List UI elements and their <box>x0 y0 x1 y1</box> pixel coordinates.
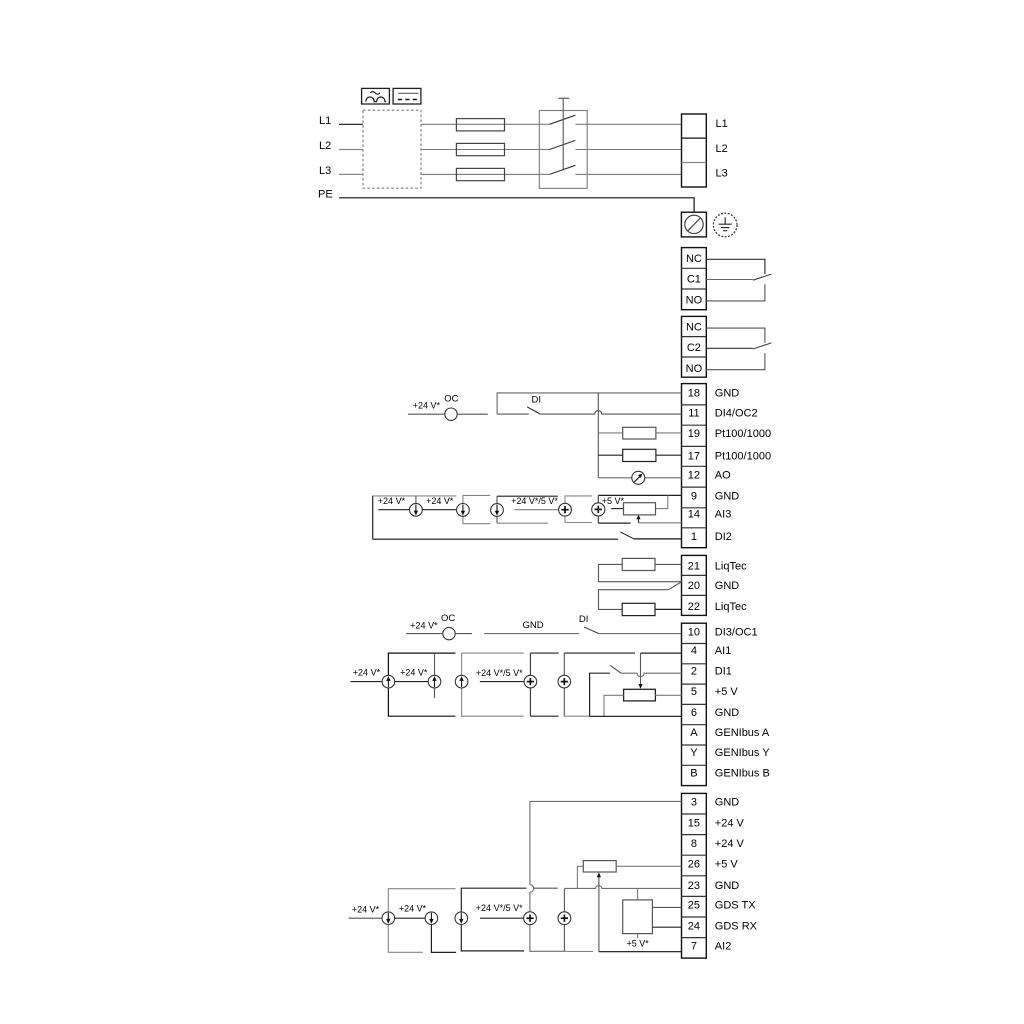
svg-text:26: 26 <box>688 859 700 871</box>
svg-text:+24 V*: +24 V* <box>413 400 441 410</box>
svg-text:5: 5 <box>691 686 697 698</box>
svg-text:Y: Y <box>690 747 698 759</box>
svg-text:GDS RX: GDS RX <box>715 920 758 932</box>
svg-text:GENIbus A: GENIbus A <box>715 727 770 739</box>
svg-text:1: 1 <box>691 531 697 543</box>
svg-text:+5 V: +5 V <box>715 686 739 698</box>
svg-text:9: 9 <box>691 490 697 502</box>
svg-text:GDS TX: GDS TX <box>715 900 756 912</box>
svg-text:L3: L3 <box>716 167 728 179</box>
svg-text:23: 23 <box>688 880 700 892</box>
svg-text:DI: DI <box>579 614 589 625</box>
svg-text:8: 8 <box>691 838 697 850</box>
svg-text:AI2: AI2 <box>715 941 732 953</box>
svg-text:GENIbus B: GENIbus B <box>715 768 770 780</box>
svg-text:DI: DI <box>532 395 542 406</box>
svg-text:+5 V*: +5 V* <box>627 939 650 949</box>
svg-text:21: 21 <box>688 560 700 572</box>
svg-text:18: 18 <box>688 388 700 400</box>
svg-text:24: 24 <box>688 920 700 932</box>
svg-text:AO: AO <box>715 470 731 482</box>
svg-text:+24 V*: +24 V* <box>410 621 438 631</box>
svg-text:A: A <box>690 727 698 739</box>
svg-text:DI3/OC1: DI3/OC1 <box>715 627 758 639</box>
svg-text:17: 17 <box>688 451 700 463</box>
svg-text:+24 V*: +24 V* <box>353 668 381 678</box>
svg-text:GND: GND <box>523 620 544 631</box>
svg-text:NC: NC <box>686 322 702 334</box>
svg-text:+5 V*: +5 V* <box>602 496 625 506</box>
svg-text:AI1: AI1 <box>715 645 732 657</box>
svg-text:Pt100/1000: Pt100/1000 <box>715 451 771 463</box>
svg-text:NO: NO <box>686 294 703 306</box>
svg-text:Pt100/1000: Pt100/1000 <box>715 428 771 440</box>
svg-text:L2: L2 <box>716 143 728 155</box>
svg-text:DI1: DI1 <box>715 666 732 678</box>
svg-text:L1: L1 <box>319 115 331 127</box>
svg-text:7: 7 <box>691 941 697 953</box>
svg-text:GND: GND <box>715 388 740 400</box>
svg-text:L3: L3 <box>319 165 331 177</box>
svg-text:19: 19 <box>688 428 700 440</box>
svg-text:AI3: AI3 <box>715 509 732 521</box>
svg-text:C2: C2 <box>687 342 701 354</box>
svg-text:+24 V*: +24 V* <box>426 496 454 506</box>
svg-text:LiqTec: LiqTec <box>715 601 747 613</box>
svg-text:10: 10 <box>688 627 700 639</box>
svg-text:+24 V: +24 V <box>715 818 745 830</box>
svg-text:GND: GND <box>715 580 740 592</box>
svg-text:GND: GND <box>715 707 740 719</box>
svg-text:3: 3 <box>691 797 697 809</box>
svg-text:GND: GND <box>715 797 740 809</box>
svg-text:25: 25 <box>688 900 700 912</box>
svg-text:+24 V*: +24 V* <box>400 668 428 678</box>
svg-text:OC: OC <box>444 393 458 404</box>
svg-text:+24 V*/5 V*: +24 V*/5 V* <box>476 903 523 913</box>
svg-text:+24 V*: +24 V* <box>399 904 427 914</box>
svg-text:6: 6 <box>691 707 697 719</box>
svg-text:GND: GND <box>715 880 740 892</box>
svg-text:L1: L1 <box>716 118 728 130</box>
svg-text:12: 12 <box>688 470 700 482</box>
svg-text:+24 V*/5 V*: +24 V*/5 V* <box>476 668 523 678</box>
svg-text:GENIbus Y: GENIbus Y <box>715 747 770 759</box>
svg-text:+24 V*: +24 V* <box>378 496 406 506</box>
svg-text:+24 V*: +24 V* <box>352 904 380 914</box>
svg-text:PE: PE <box>318 188 333 200</box>
svg-text:L2: L2 <box>319 140 331 152</box>
svg-text:B: B <box>690 768 697 780</box>
svg-text:DI4/OC2: DI4/OC2 <box>715 407 758 419</box>
svg-text:LiqTec: LiqTec <box>715 560 747 572</box>
svg-text:NO: NO <box>686 363 703 375</box>
svg-text:15: 15 <box>688 818 700 830</box>
svg-text:C1: C1 <box>687 274 701 286</box>
svg-text:14: 14 <box>688 509 700 521</box>
svg-text:GND: GND <box>715 490 740 502</box>
svg-text:+24 V*/5 V*: +24 V*/5 V* <box>511 496 558 506</box>
svg-text:4: 4 <box>691 645 697 657</box>
svg-text:NC: NC <box>686 253 702 265</box>
svg-text:+24 V: +24 V <box>715 838 745 850</box>
svg-text:DI2: DI2 <box>715 531 732 543</box>
svg-text:OC: OC <box>441 613 455 624</box>
svg-text:22: 22 <box>688 601 700 613</box>
svg-text:11: 11 <box>688 407 699 419</box>
svg-text:20: 20 <box>688 580 700 592</box>
svg-text:2: 2 <box>691 666 697 678</box>
svg-text:+5 V: +5 V <box>715 859 739 871</box>
